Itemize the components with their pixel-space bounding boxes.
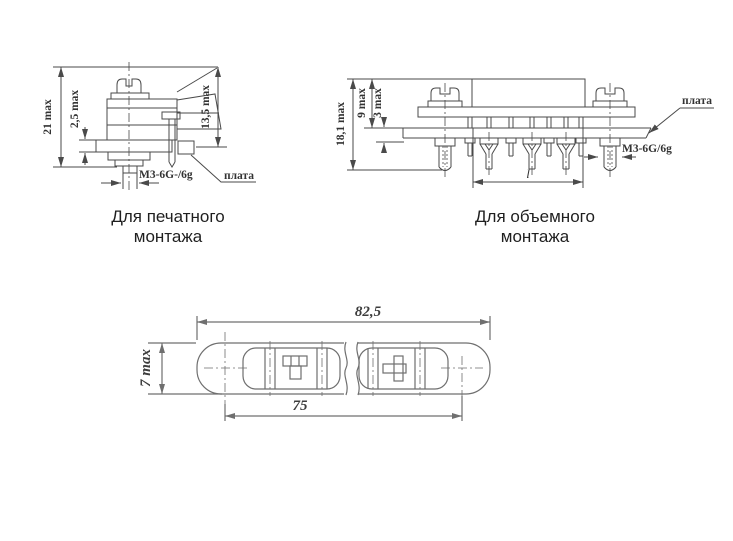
dim-flange-label: 2,5 max — [69, 90, 81, 129]
dim-height-label: 7 max — [138, 349, 154, 387]
dim-length-label: l — [526, 166, 530, 181]
dim-overall-label: 82,5 — [355, 304, 382, 320]
board — [403, 128, 651, 138]
connector-outline — [197, 343, 490, 394]
dim-spacing-label: 75 — [293, 398, 309, 414]
board-label: плата — [682, 95, 712, 107]
dim-lower-label: 3 max — [372, 88, 384, 118]
thread-spec-label: М3-6G-/6g — [139, 169, 193, 181]
contact-stems — [468, 117, 583, 128]
right-key — [383, 356, 406, 381]
caption-printed-mounting: Для печатного монтажа — [88, 207, 248, 247]
technical-drawing-page: 21 max 13,5 max 2,5 max М3-6G-/6g плата — [0, 0, 733, 541]
figure-printed-mounting-drawing: 21 max 13,5 max 2,5 max М3-6G-/6g плата — [42, 62, 256, 190]
drawing-svg: 21 max 13,5 max 2,5 max М3-6G-/6g плата — [0, 0, 733, 541]
board-label: плата — [224, 170, 254, 182]
dim-right-height-label: 13,5 max — [200, 85, 212, 129]
connector-housing — [472, 79, 585, 107]
right-stud — [600, 83, 620, 180]
dim-upper-label: 9 max — [356, 88, 368, 118]
dim-total-height-label: 18,1 max — [335, 102, 347, 146]
dim-total-height-label: 21 max — [42, 99, 54, 135]
figure-plan-view-drawing: 82,5 75 7 max — [138, 304, 490, 421]
figure-volume-mounting-drawing: 18,1 max 9 max 3 max l плата М3-6G/6g — [335, 79, 714, 188]
left-stud — [435, 83, 455, 180]
screw-head — [111, 79, 149, 99]
caption-volume-mounting: Для объемного монтажа — [455, 207, 615, 247]
board-section — [178, 141, 194, 154]
thread-spec-label: М3-6G/6g — [622, 143, 672, 155]
flange-bar — [418, 107, 635, 117]
left-key — [283, 356, 307, 379]
left-insert — [243, 348, 340, 389]
